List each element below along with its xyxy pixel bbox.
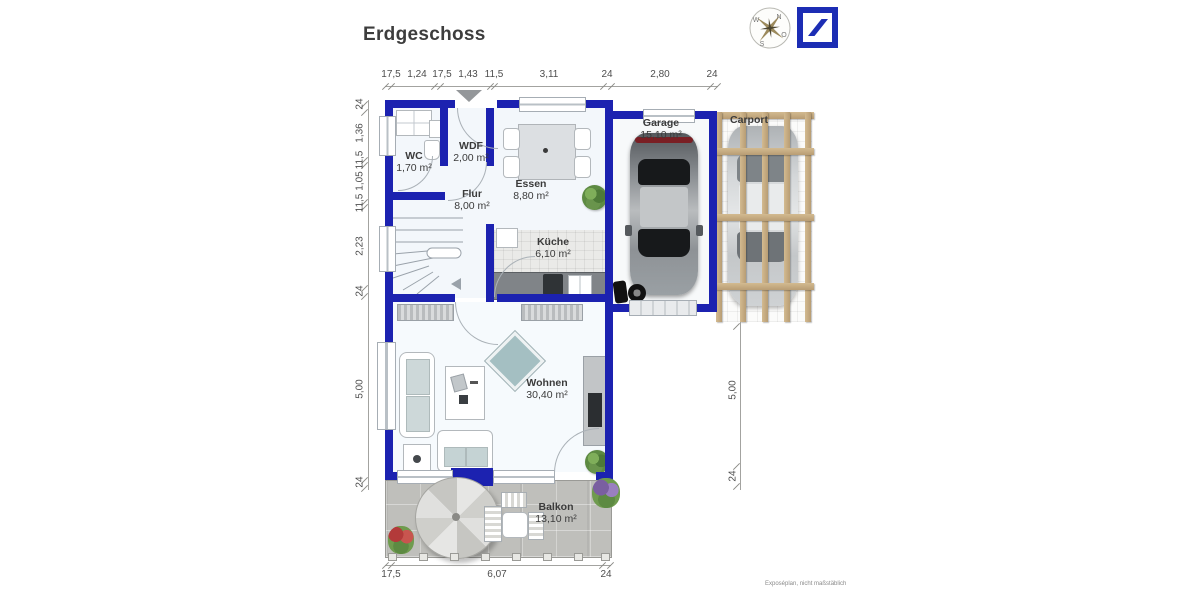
wall-segment bbox=[486, 224, 494, 302]
carport-beam bbox=[714, 214, 814, 221]
room-area: 1,70 m² bbox=[396, 162, 432, 174]
window bbox=[379, 116, 396, 156]
compass-w: W bbox=[753, 17, 760, 24]
compass-s: S bbox=[760, 41, 765, 48]
dimension-line-bottom bbox=[385, 565, 611, 566]
room-label-carport: Carport bbox=[730, 114, 768, 126]
sideboard bbox=[521, 304, 583, 321]
window bbox=[379, 226, 396, 272]
kitchen-sink bbox=[568, 275, 592, 295]
balcony-post bbox=[512, 553, 521, 561]
footer-note: Exposéplan, nicht maßstäblich bbox=[765, 581, 846, 587]
balcony-post bbox=[450, 553, 459, 561]
wall-segment bbox=[497, 100, 519, 108]
compass-o: O bbox=[781, 32, 787, 39]
dim-bottom: 24 bbox=[600, 569, 611, 580]
dim-top: 24 bbox=[706, 69, 717, 80]
flower-pot bbox=[388, 526, 414, 554]
window bbox=[377, 342, 396, 430]
tv-screen bbox=[588, 393, 602, 427]
room-name: Garage bbox=[640, 117, 681, 129]
room-name: WC bbox=[396, 150, 432, 162]
car-rear-window bbox=[638, 159, 690, 185]
room-area: 8,80 m² bbox=[513, 190, 549, 202]
dim-left: 24 bbox=[355, 98, 366, 109]
parasol-pole bbox=[452, 513, 460, 521]
room-name: WDF bbox=[453, 140, 489, 152]
sofa-left bbox=[399, 352, 435, 438]
decor-object bbox=[459, 395, 468, 404]
room-label-kueche: Küche 6,10 m² bbox=[535, 236, 571, 261]
room-name: Wohnen bbox=[526, 377, 567, 389]
magazine bbox=[450, 373, 468, 392]
room-label-balkon: Balkon 13,10 m² bbox=[535, 501, 576, 526]
dim-tick bbox=[714, 83, 721, 90]
room-area: 2,00 m² bbox=[453, 152, 489, 164]
sofa-cushion bbox=[466, 447, 488, 467]
plant bbox=[582, 185, 607, 210]
window bbox=[519, 97, 586, 112]
dim-top: 11,5 bbox=[485, 69, 504, 80]
dimension-line-right bbox=[740, 322, 741, 490]
sideboard bbox=[397, 304, 454, 321]
dim-right: 5,00 bbox=[728, 380, 739, 399]
wall-segment bbox=[605, 100, 613, 312]
dim-top: 17,5 bbox=[432, 69, 451, 80]
wall-segment bbox=[613, 111, 643, 119]
dim-right: 24 bbox=[728, 470, 739, 481]
balcony-chair bbox=[484, 506, 502, 542]
balcony-table bbox=[502, 512, 528, 538]
room-label-garage: Garage 15,10 m² bbox=[640, 117, 681, 142]
dim-left: 11,5 bbox=[355, 151, 366, 170]
remote bbox=[470, 381, 478, 384]
brand-logo-icon bbox=[797, 7, 838, 48]
balcony-post bbox=[481, 553, 490, 561]
car-mirror bbox=[696, 225, 703, 236]
room-label-wdf: WDF 2,00 m² bbox=[453, 140, 489, 165]
room-area: 15,10 m² bbox=[640, 129, 681, 141]
sofa-bottom bbox=[437, 430, 493, 472]
dim-top: 2,80 bbox=[650, 69, 669, 80]
dim-bottom: 17,5 bbox=[381, 569, 400, 580]
wall-segment bbox=[613, 304, 629, 312]
dim-tick bbox=[733, 483, 740, 490]
wall-segment bbox=[385, 294, 455, 302]
balcony-chair bbox=[501, 492, 527, 508]
dim-left: 11,5 bbox=[355, 194, 366, 213]
coffee-table bbox=[445, 366, 485, 420]
staircase bbox=[393, 206, 463, 296]
room-name: Flur bbox=[454, 188, 490, 200]
balcony-post bbox=[419, 553, 428, 561]
dim-left: 24 bbox=[355, 476, 366, 487]
room-label-wohnen: Wohnen 30,40 m² bbox=[526, 377, 567, 402]
garage-car bbox=[630, 133, 698, 295]
dining-chair bbox=[503, 156, 520, 178]
dim-left: 24 bbox=[355, 285, 366, 296]
dim-left: 5,00 bbox=[355, 379, 366, 398]
dim-top: 24 bbox=[601, 69, 612, 80]
room-label-wc: WC 1,70 m² bbox=[396, 150, 432, 175]
dim-tick bbox=[733, 463, 740, 470]
dim-top: 1,24 bbox=[407, 69, 426, 80]
dim-top: 3,11 bbox=[540, 69, 559, 80]
dining-table-center bbox=[543, 148, 548, 153]
flower-pot bbox=[592, 478, 620, 508]
wall-segment bbox=[385, 192, 445, 200]
window bbox=[493, 470, 555, 484]
sofa-cushion bbox=[406, 359, 430, 395]
room-area: 30,40 m² bbox=[526, 389, 567, 401]
wall-segment bbox=[695, 304, 717, 312]
dimension-line-left bbox=[368, 100, 369, 490]
page-title: Erdgeschoss bbox=[363, 24, 486, 46]
compass-n: N bbox=[776, 14, 781, 21]
kitchen-fridge bbox=[496, 228, 518, 248]
garage-door bbox=[629, 300, 697, 316]
room-area: 13,10 m² bbox=[535, 513, 576, 525]
dim-tick bbox=[607, 562, 614, 569]
sofa-cushion bbox=[444, 447, 466, 467]
room-name: Essen bbox=[513, 178, 549, 190]
car-mirror bbox=[625, 225, 632, 236]
dim-left: 2,23 bbox=[355, 236, 366, 255]
dining-chair bbox=[503, 128, 520, 150]
dim-top: 1,43 bbox=[458, 69, 477, 80]
sofa-cushion bbox=[406, 396, 430, 432]
room-area: 8,00 m² bbox=[454, 200, 490, 212]
dining-chair bbox=[574, 156, 591, 178]
entrance-arrow-icon bbox=[456, 90, 482, 102]
carport-beam bbox=[714, 148, 814, 155]
room-area: 6,10 m² bbox=[535, 248, 571, 260]
decor-object bbox=[413, 455, 421, 463]
wall-segment bbox=[709, 111, 717, 312]
dim-tick bbox=[361, 109, 368, 116]
room-name: Balkon bbox=[535, 501, 576, 513]
wall-segment bbox=[385, 100, 455, 108]
balcony-post bbox=[388, 553, 397, 561]
dim-left: 1,05 bbox=[355, 171, 366, 190]
dim-tick bbox=[733, 323, 740, 330]
car-roof bbox=[640, 187, 688, 227]
room-label-essen: Essen 8,80 m² bbox=[513, 178, 549, 203]
carport-beam bbox=[714, 283, 814, 290]
dim-left: 1,36 bbox=[355, 123, 366, 142]
room-name: Küche bbox=[535, 236, 571, 248]
compass-rose-icon: N O S W bbox=[748, 6, 792, 50]
wall-segment bbox=[440, 108, 448, 166]
balcony-post bbox=[601, 553, 610, 561]
balcony-post bbox=[574, 553, 583, 561]
wall-segment bbox=[605, 312, 613, 480]
wc-shower bbox=[396, 110, 432, 136]
dim-top: 17,5 bbox=[381, 69, 400, 80]
kitchen-stove bbox=[543, 274, 563, 295]
balcony-post bbox=[543, 553, 552, 561]
room-label-flur: Flur 8,00 m² bbox=[454, 188, 490, 213]
dim-bottom: 6,07 bbox=[487, 569, 506, 580]
room-name: Carport bbox=[730, 114, 768, 126]
dining-chair bbox=[574, 128, 591, 150]
car-windshield bbox=[638, 229, 690, 257]
